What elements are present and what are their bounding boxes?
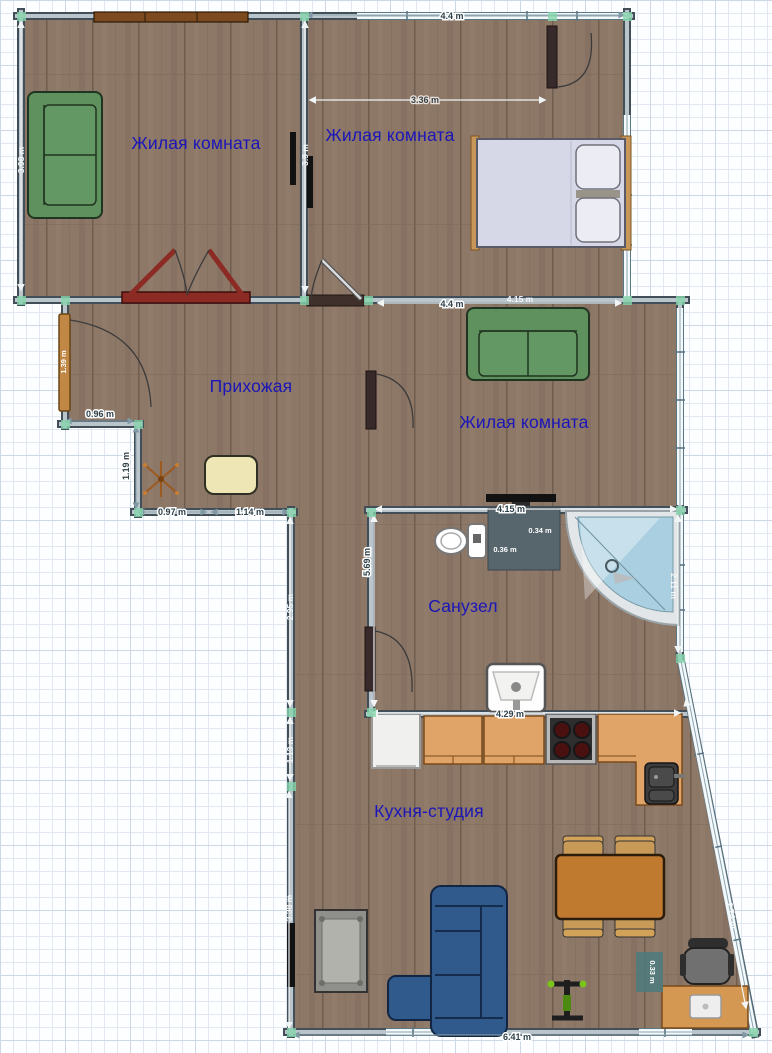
kitchen-cabinet-1[interactable]	[424, 716, 482, 764]
room-label-hallway: Прихожая	[210, 376, 293, 396]
room-label-living-1: Жилая комната	[132, 133, 261, 153]
window-living3-right[interactable]	[675, 308, 685, 505]
room-label-bathroom: Санузел	[428, 596, 498, 616]
stove[interactable]	[546, 714, 596, 764]
green-sofa-2[interactable]	[467, 308, 589, 380]
coffee-table[interactable]	[315, 910, 367, 992]
green-sofa-1[interactable]	[28, 92, 102, 218]
dim-bath-width: 4.15 m	[497, 504, 525, 514]
dim-bottom-width: 6.41 m	[503, 1032, 531, 1042]
dim-corridor-height: 2.95 m	[285, 593, 295, 620]
dim-entrance-door: 1.39 m	[59, 350, 68, 374]
dim-hall-right-height: 5.69 m	[362, 548, 372, 576]
pillow-2	[576, 198, 620, 242]
dim-hall-bottom-right: 1.14 m	[236, 507, 264, 517]
office-chair[interactable]	[680, 938, 734, 984]
floor-plan-drawing: 4.4 m 3.36 m 3.98 m 3.9 m 4.4 m 4.15 m 0…	[0, 0, 772, 1053]
kitchen-sink[interactable]	[645, 763, 684, 804]
dim-bath-shelf-width: 0.34 m	[528, 526, 552, 535]
desk[interactable]	[662, 986, 748, 1028]
window-top[interactable]	[357, 11, 627, 21]
dim-room3-width: 4.4 m	[440, 299, 463, 309]
dim-kitchen-left-lower: 3.38 m	[284, 894, 294, 921]
tv-kitchen[interactable]	[287, 923, 295, 987]
dim-badge-desk-offset: 0.33 m	[636, 952, 663, 992]
bathroom-sink[interactable]	[487, 664, 545, 712]
dim-kitchen-left-upper: 1.13 m	[285, 736, 295, 763]
kitchen-cabinet-2[interactable]	[484, 716, 544, 764]
dim-hall-step-height: 1.19 m	[121, 452, 131, 480]
dim-bedroom-width: 3.36 m	[411, 95, 439, 105]
dim-room1-height: 3.98 m	[16, 146, 26, 173]
floor-plan-canvas[interactable]: 4.4 m 3.36 m 3.98 m 3.9 m 4.4 m 4.15 m 0…	[0, 0, 772, 1053]
double-bed[interactable]	[471, 136, 631, 250]
room-label-living-2: Жилая комната	[326, 125, 455, 145]
dim-hall-bottom-left: 0.97 m	[158, 507, 186, 517]
dim-hall-step-width: 0.96 m	[86, 409, 114, 419]
dim-bath-shelf-depth: 0.36 m	[493, 545, 517, 554]
dim-top-width: 4.4 m	[440, 11, 463, 21]
dim-kitchen-width: 4.29 m	[496, 709, 524, 719]
dim-bath-right-height: 2.11 m	[669, 573, 679, 599]
pillow-1	[576, 145, 620, 189]
room-label-living-3: Жилая комната	[460, 412, 589, 432]
fridge[interactable]	[372, 714, 420, 768]
wall-shelf[interactable]	[94, 12, 248, 22]
dim-divider-height: 3.9 m	[300, 144, 310, 166]
tv-living1[interactable]	[290, 132, 296, 185]
dim-desk-offset: 0.33 m	[648, 960, 657, 984]
dim-bedroom-wall: 4.15 m	[507, 294, 534, 304]
bath-partition[interactable]	[488, 508, 560, 570]
hall-pouf[interactable]	[205, 456, 257, 494]
room-label-kitchen: Кухня-студия	[374, 801, 484, 821]
